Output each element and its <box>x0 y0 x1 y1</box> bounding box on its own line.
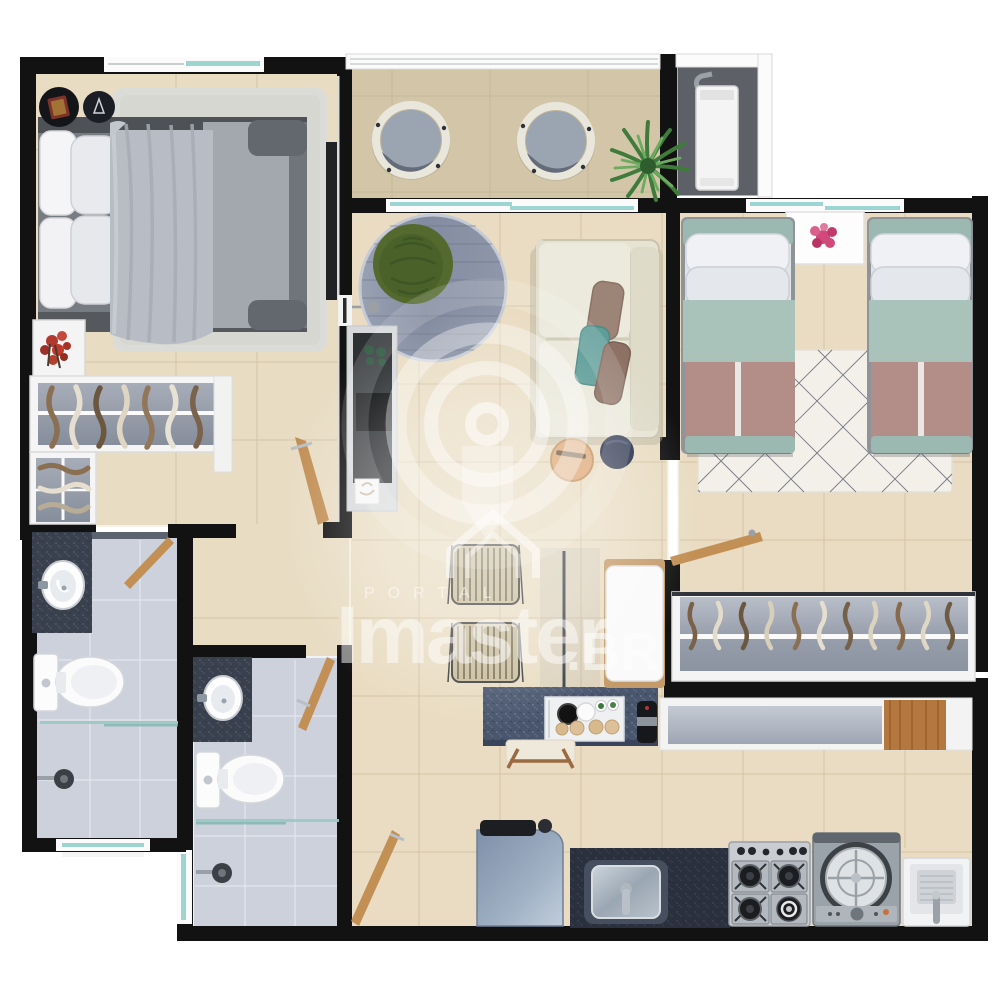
svg-text:.BR: .BR <box>566 622 659 682</box>
